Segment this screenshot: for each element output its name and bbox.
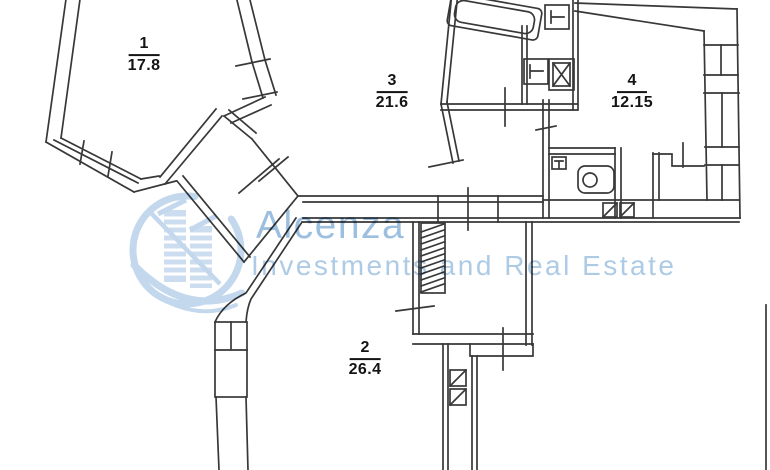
room-number: 3 — [377, 72, 408, 93]
room-4-label: 4 12.15 — [611, 72, 653, 112]
room-3-label: 3 21.6 — [376, 72, 409, 112]
room-3-right-wall — [429, 0, 463, 167]
toilet-icon — [578, 166, 614, 193]
window-band-icon — [215, 322, 247, 397]
storage-walls — [396, 222, 533, 370]
floor-plan-drawing — [0, 0, 770, 470]
door-tick — [536, 126, 556, 130]
room-number: 4 — [617, 72, 648, 93]
kitchen-sink-icon — [545, 5, 569, 29]
room-1-label: 1 17.8 — [128, 35, 161, 75]
bathtub-icon — [446, 0, 542, 41]
door-leaf — [239, 159, 279, 193]
bottom-corridor-walls — [443, 344, 477, 470]
niche-walls — [653, 143, 704, 200]
room-area: 17.8 — [128, 57, 161, 75]
room-2-label: 2 26.4 — [349, 339, 382, 379]
room-4-walls — [575, 3, 740, 218]
room-area: 21.6 — [376, 94, 409, 112]
room-number: 2 — [350, 339, 381, 360]
door-tick — [429, 160, 463, 167]
vestibule-walls — [177, 97, 298, 262]
window-band-icon — [46, 138, 141, 192]
corridor-walls — [298, 188, 740, 230]
door-tick — [396, 306, 434, 311]
window-band-icon — [236, 59, 277, 99]
wc-basin-icon — [552, 157, 566, 169]
room-area: 26.4 — [349, 361, 382, 379]
room-2-walls — [215, 218, 302, 470]
room-number: 1 — [129, 35, 160, 56]
stove-icon — [549, 59, 574, 90]
ventilation-shaft-icon — [620, 203, 634, 217]
built-in-wardrobe-hatch-icon — [421, 223, 445, 293]
duct-shaft-icon — [450, 370, 466, 386]
room-area: 12.15 — [611, 94, 653, 112]
room-1-walls — [46, 0, 277, 192]
duct-shaft-icon — [450, 389, 466, 405]
